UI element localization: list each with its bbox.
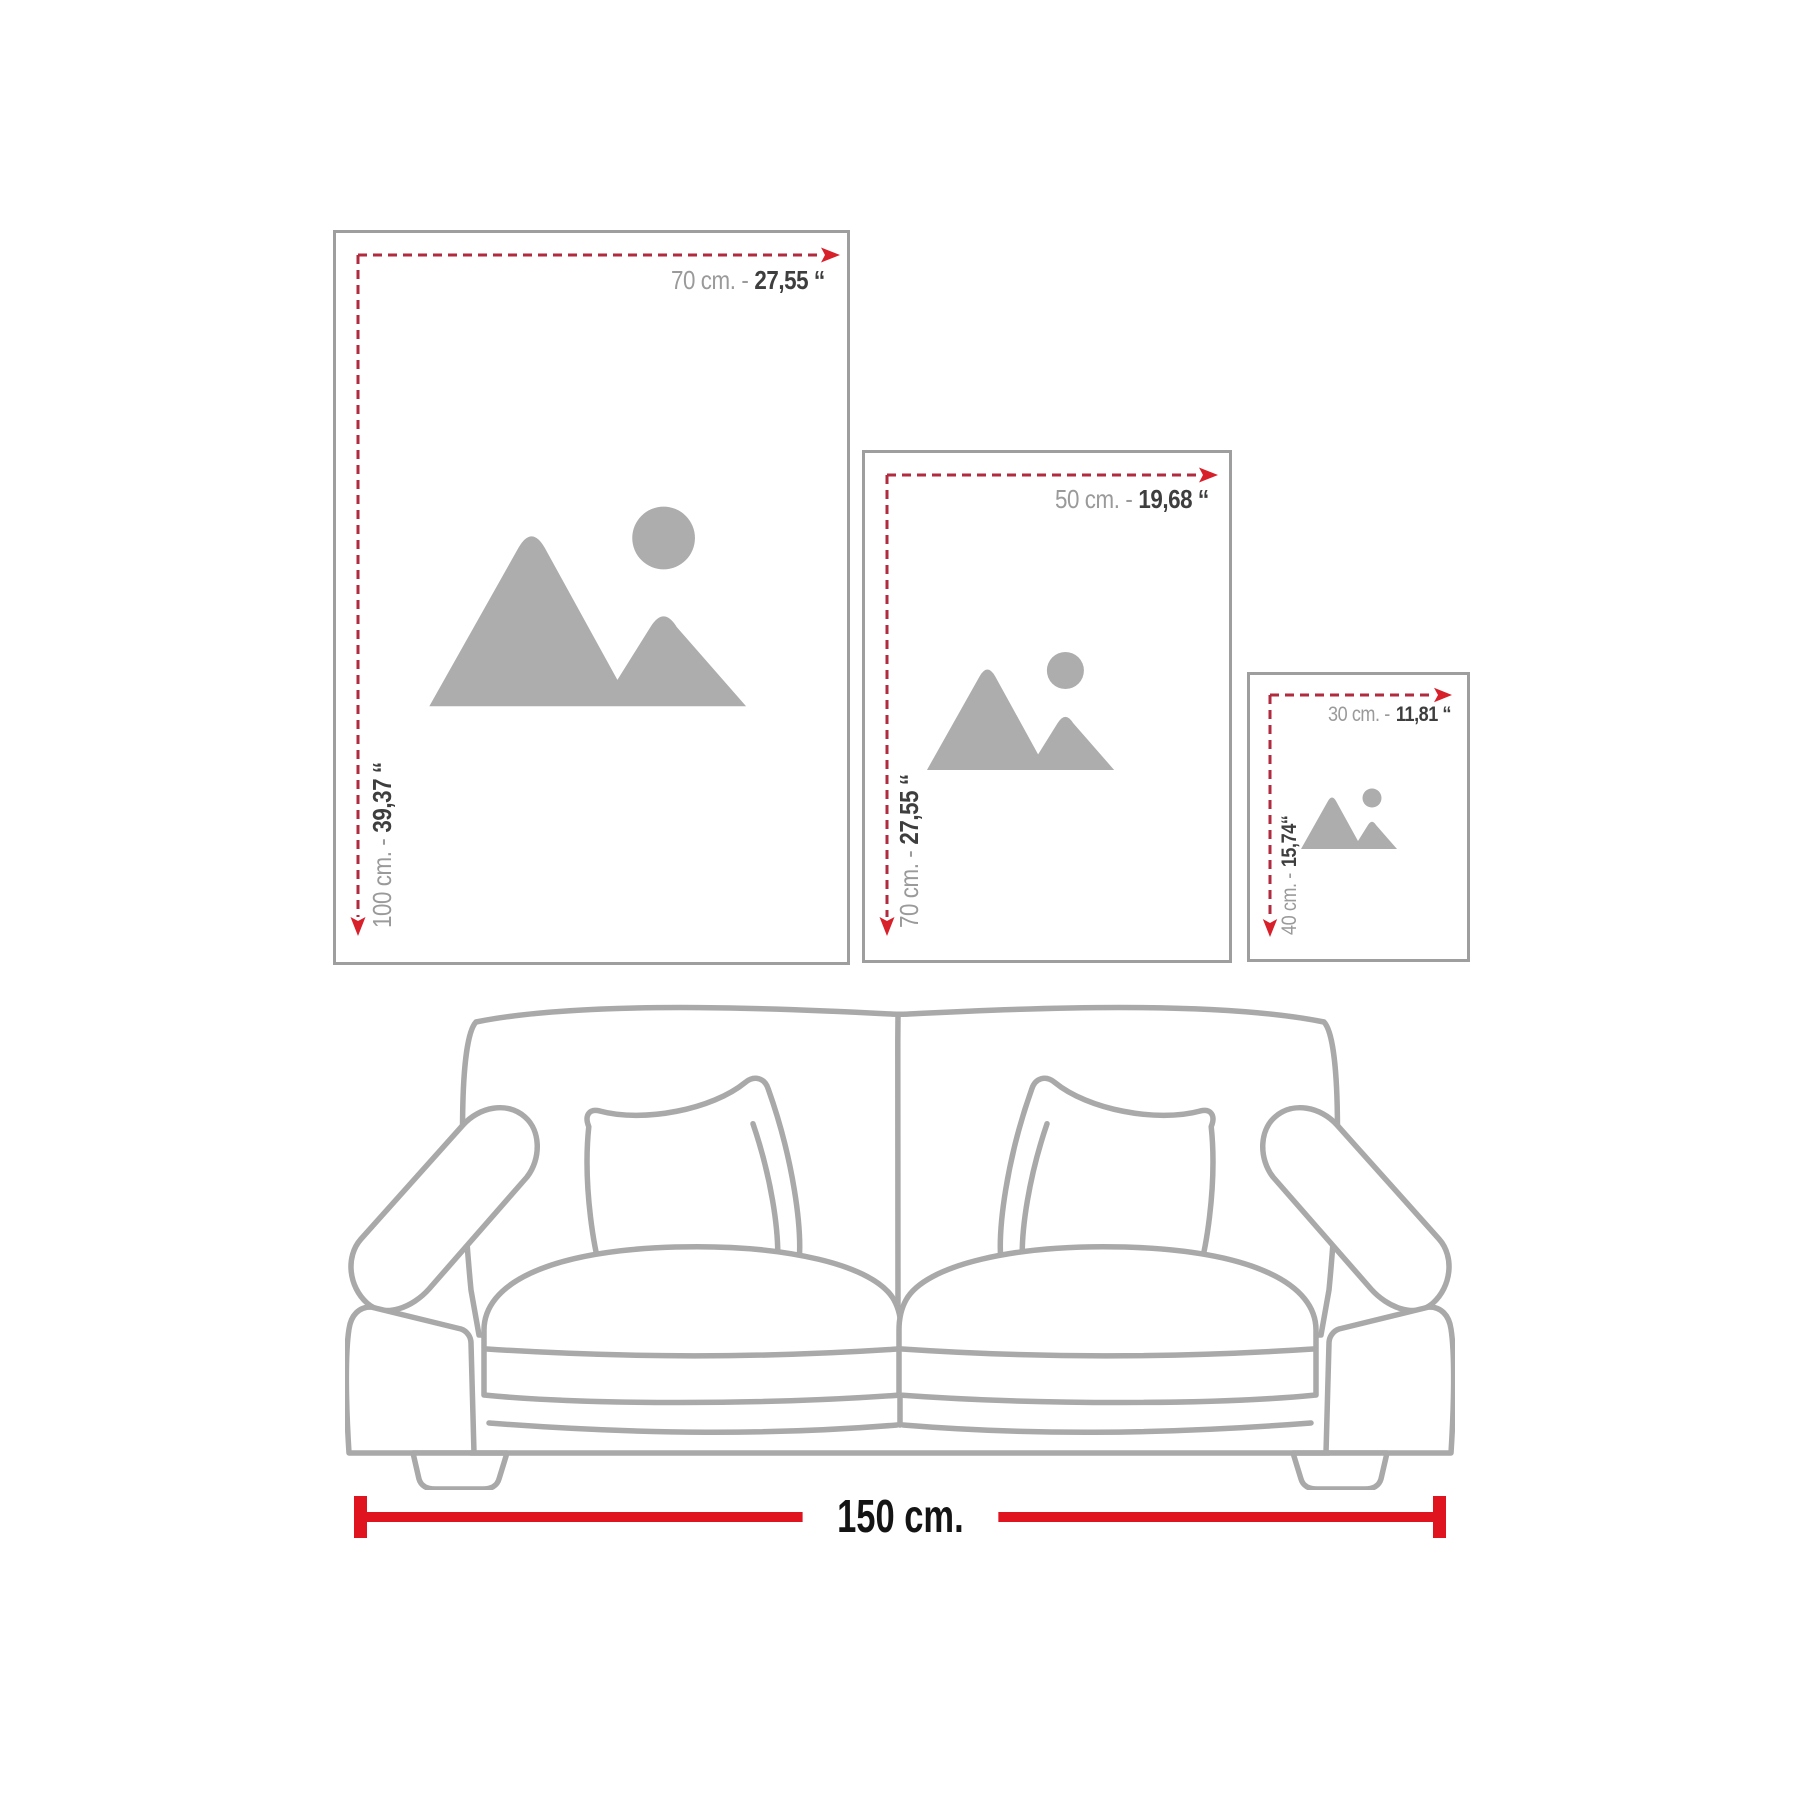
width-dimension-label: 30 cm. -11,81 ‘‘ bbox=[1328, 703, 1451, 727]
arrow-down-icon bbox=[351, 917, 366, 936]
image-placeholder-icon bbox=[426, 495, 756, 713]
height-inch-value: 15,74‘‘ bbox=[1278, 816, 1301, 868]
height-cm-value: 40 cm. - bbox=[1278, 873, 1301, 935]
width-dimension-label: 50 cm. -19,68 ‘‘ bbox=[1055, 484, 1209, 515]
measure-value: 150 cm. bbox=[802, 1489, 998, 1543]
size-guide-diagram: 70 cm. -27,55 ‘‘ 100 cm. -39,37 ‘‘ 50 cm… bbox=[0, 0, 1800, 1800]
height-inch-value: 27,55 ‘‘ bbox=[894, 774, 924, 844]
height-inch-value: 39,37 ‘‘ bbox=[367, 762, 397, 832]
image-placeholder-icon bbox=[925, 645, 1120, 774]
poster-frame-small: 30 cm. -11,81 ‘‘ 40 cm. -15,74‘‘ bbox=[1247, 672, 1470, 962]
width-inch-value: 27,55 ‘‘ bbox=[755, 265, 825, 295]
arrow-right-icon bbox=[1434, 688, 1452, 702]
arrow-down-icon bbox=[880, 917, 895, 936]
sofa-back-seam bbox=[897, 1016, 898, 1333]
poster-frame-medium: 50 cm. -19,68 ‘‘ 70 cm. -27,55 ‘‘ bbox=[862, 450, 1232, 963]
sofa-seat-cushion bbox=[484, 1247, 901, 1403]
height-dimension-label: 40 cm. -15,74‘‘ bbox=[1278, 816, 1302, 935]
arrow-down-icon bbox=[1263, 919, 1277, 937]
height-cm-value: 100 cm. - bbox=[367, 839, 397, 928]
width-cm-value: 30 cm. - bbox=[1328, 703, 1390, 726]
width-cm-value: 50 cm. - bbox=[1055, 484, 1132, 514]
arrow-right-icon bbox=[1199, 468, 1218, 483]
arrow-right-icon bbox=[821, 248, 840, 263]
sofa-width-measure: 150 cm. bbox=[354, 1496, 1446, 1538]
width-dimension-label: 70 cm. -27,55 ‘‘ bbox=[671, 265, 825, 296]
width-inch-value: 11,81 ‘‘ bbox=[1396, 703, 1451, 726]
sofa-drawing bbox=[345, 985, 1455, 1490]
sofa-illustration bbox=[345, 985, 1455, 1490]
sofa-armrest bbox=[346, 1307, 474, 1453]
width-cm-value: 70 cm. - bbox=[671, 265, 748, 295]
poster-frame-large: 70 cm. -27,55 ‘‘ 100 cm. -39,37 ‘‘ bbox=[333, 230, 850, 965]
height-dimension-label: 70 cm. -27,55 ‘‘ bbox=[894, 774, 925, 928]
height-cm-value: 70 cm. - bbox=[894, 851, 924, 928]
image-placeholder-icon bbox=[1300, 785, 1400, 851]
sofa-skirt-seam bbox=[489, 1423, 897, 1432]
width-inch-value: 19,68 ‘‘ bbox=[1139, 484, 1209, 514]
height-dimension-label: 100 cm. -39,37 ‘‘ bbox=[367, 762, 398, 928]
